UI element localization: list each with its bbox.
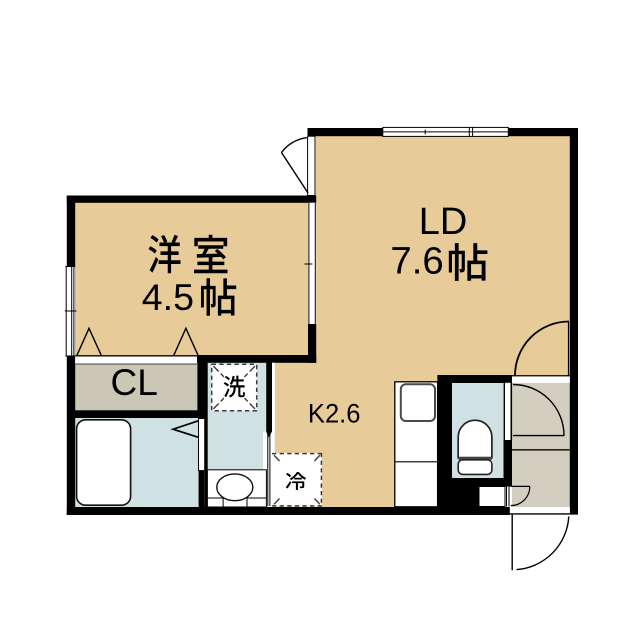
svg-text:4.5: 4.5 bbox=[142, 276, 194, 318]
svg-text:LD: LD bbox=[419, 201, 468, 243]
svg-text:K2.6: K2.6 bbox=[308, 398, 361, 428]
svg-text:7.6: 7.6 bbox=[390, 240, 443, 283]
svg-text:CL: CL bbox=[111, 362, 158, 403]
